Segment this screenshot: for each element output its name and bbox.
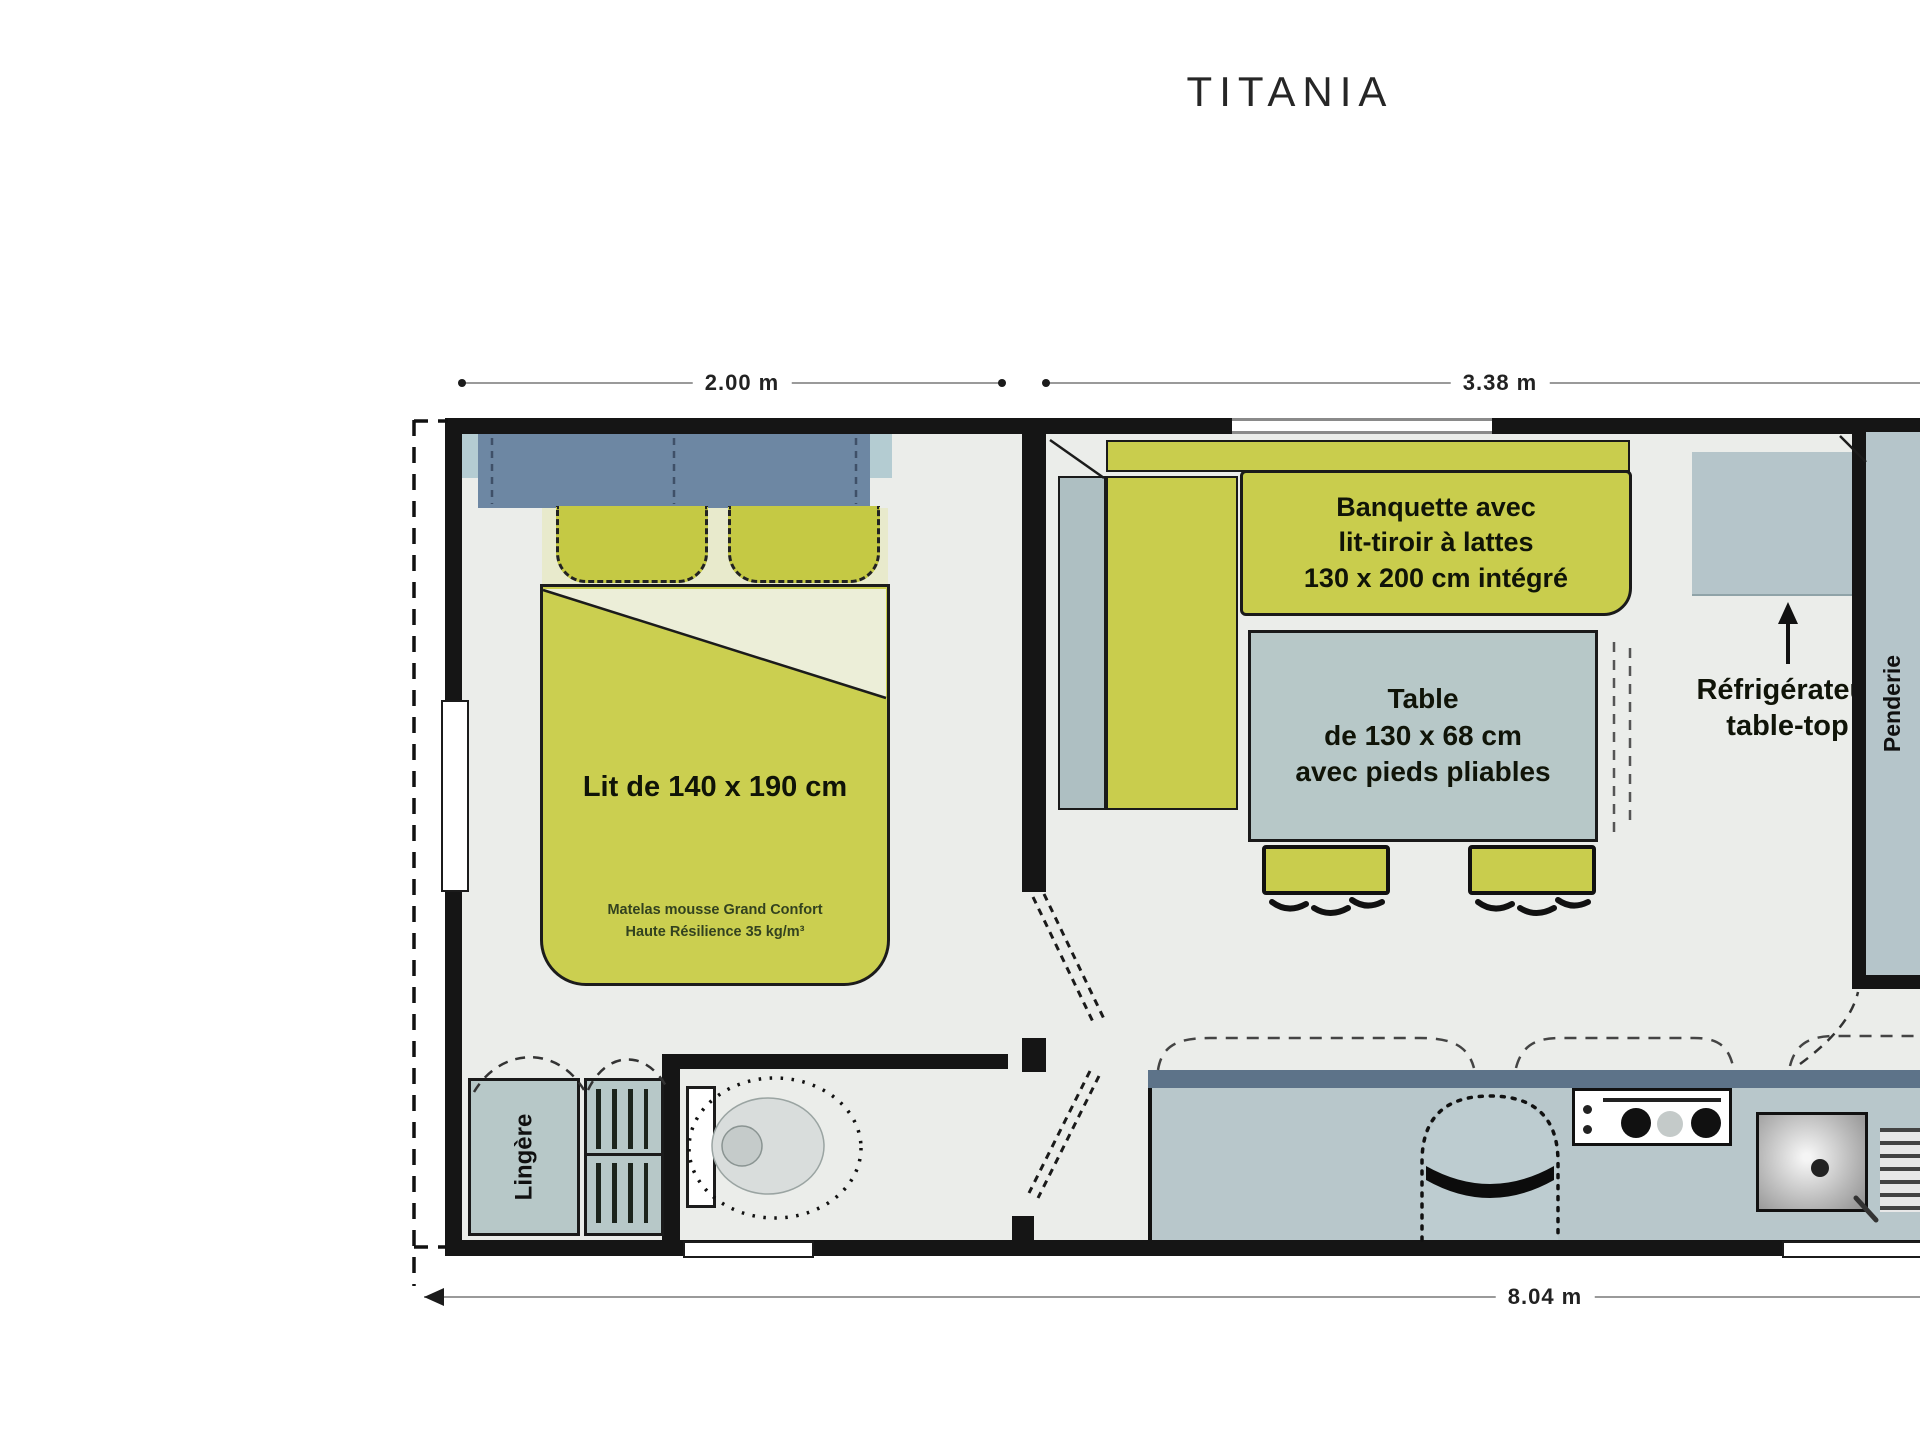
linen-cabinet-label: Lingère (510, 1114, 538, 1201)
hob-knob-2 (1583, 1125, 1592, 1134)
shelf-stripes-bottom (596, 1163, 648, 1223)
wardrobe-left-wall (1852, 432, 1866, 989)
mattress-note: Matelas mousse Grand Confort Haute Résil… (548, 896, 882, 948)
banquette-line2: lit-tiroir à lattes (1338, 525, 1533, 561)
fridge-line2: table-top (1726, 708, 1848, 744)
banquette-line1: Banquette avec (1336, 490, 1536, 526)
dim-dot-1 (458, 379, 466, 387)
banquette-side-bench (1058, 476, 1106, 810)
wc-left-wall (662, 1054, 680, 1240)
banquette-line3: 130 x 200 cm intégré (1304, 561, 1568, 597)
hob-top-bar (1603, 1098, 1721, 1102)
hob-center-plate (1657, 1111, 1683, 1137)
shelf-unit (584, 1078, 664, 1236)
wc-window (683, 1241, 814, 1258)
table-line1: Table (1387, 681, 1458, 718)
top-wall-window (1232, 418, 1492, 434)
table: Table de 130 x 68 cm avec pieds pliables (1248, 630, 1598, 842)
wardrobe: Penderie (1866, 432, 1920, 975)
sink-drainer (1880, 1128, 1920, 1212)
hob-knob-1 (1583, 1105, 1592, 1114)
dim-label-living: 3.38 m (1451, 370, 1550, 396)
bed-pillow-right (728, 506, 880, 583)
top-wall (445, 418, 1920, 434)
dim-dot-3 (1042, 379, 1050, 387)
dim-dot-2 (998, 379, 1006, 387)
linen-cabinet: Lingère (468, 1078, 580, 1236)
kitchen-curved-unit (1422, 1094, 1558, 1240)
kitchen-sink (1756, 1112, 1868, 1212)
sink-drain (1811, 1159, 1829, 1177)
table-line3: avec pieds pliables (1295, 754, 1550, 791)
banquette-backrest (1106, 440, 1630, 472)
dim-label-bedroom: 2.00 m (693, 370, 792, 396)
floor-plan-canvas: TITANIA Lit de 140 x 190 cm Matelas mous… (0, 0, 1920, 1440)
wardrobe-label: Penderie (1880, 655, 1907, 752)
shelf-stripes-top (596, 1089, 648, 1149)
banquette-side-cushion (1106, 476, 1238, 810)
bedroom-side-window (441, 700, 469, 892)
stool-left (1262, 845, 1390, 895)
table-line2: de 130 x 68 cm (1324, 718, 1522, 755)
plan-title: TITANIA (1130, 68, 1450, 116)
toilet-flush-button (716, 1130, 726, 1148)
mattress-note-line2: Haute Résilience 35 kg/m³ (626, 922, 805, 944)
bottom-wall (445, 1240, 1920, 1256)
toilet-cistern (686, 1086, 716, 1208)
hob-burner-right (1691, 1108, 1721, 1138)
bed-label: Lit de 140 x 190 cm (548, 768, 882, 806)
dim-arrow-total (424, 1288, 444, 1306)
bed-label-text: Lit de 140 x 190 cm (583, 768, 847, 806)
hob-burner-left (1621, 1108, 1651, 1138)
bed-headboard-shelf (478, 434, 870, 508)
kitchen-window (1782, 1241, 1920, 1258)
shelf-divider (587, 1153, 661, 1156)
banquette-label-box: Banquette avec lit-tiroir à lattes 130 x… (1240, 470, 1632, 616)
wc-door-stub (1012, 1216, 1034, 1240)
headboard-window-left (462, 434, 478, 478)
partition-wall-bedroom (1022, 432, 1046, 892)
fridge (1692, 452, 1852, 596)
wardrobe-bottom-wall (1852, 975, 1920, 989)
mattress-note-line1: Matelas mousse Grand Confort (607, 900, 822, 922)
partition-wall-stub (1022, 1038, 1046, 1072)
dim-label-total: 8.04 m (1496, 1284, 1595, 1310)
wc-top-wall (662, 1054, 1008, 1069)
hob-panel (1572, 1088, 1732, 1146)
stool-right (1468, 845, 1596, 895)
bed-pillow-left (556, 506, 708, 583)
kitchen-counter-band (1148, 1070, 1920, 1088)
